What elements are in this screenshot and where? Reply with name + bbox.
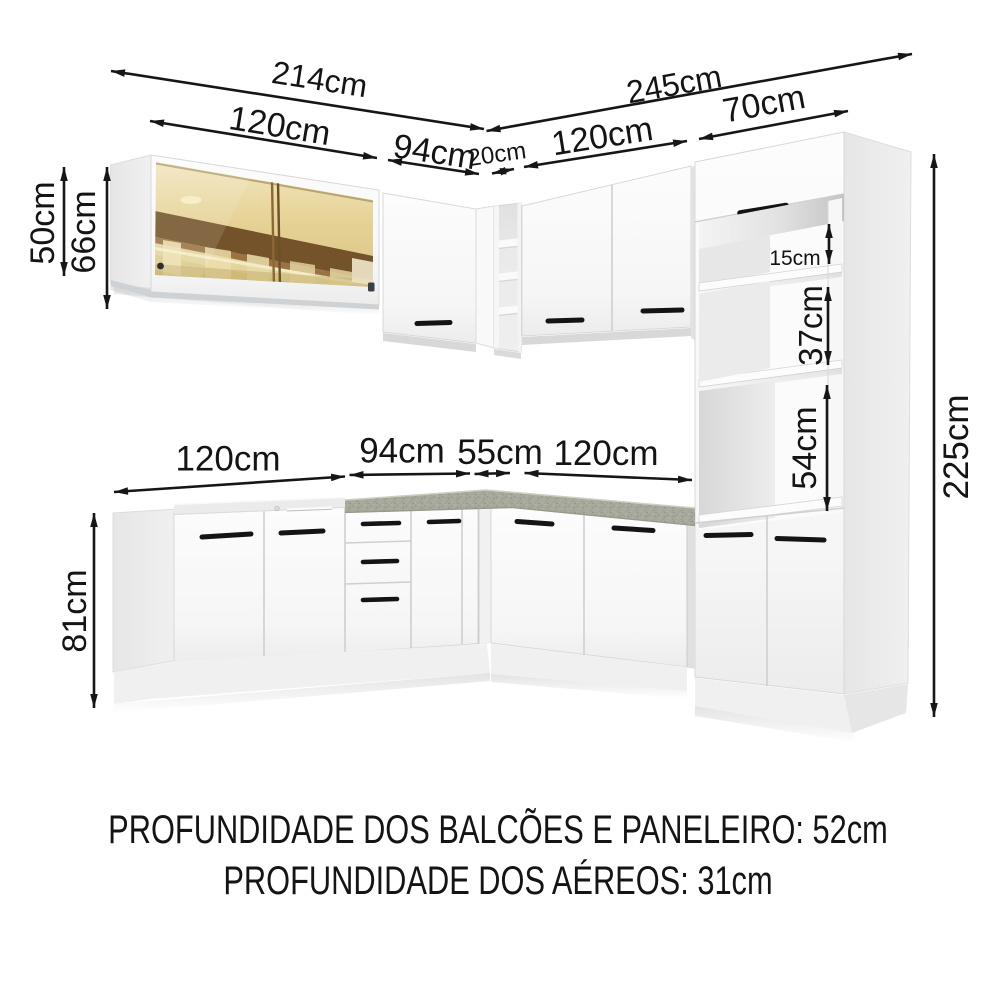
svg-text:50cm: 50cm bbox=[24, 181, 62, 264]
svg-text:54cm: 54cm bbox=[786, 406, 824, 489]
svg-text:37cm: 37cm bbox=[792, 285, 829, 366]
svg-text:94cm: 94cm bbox=[359, 432, 445, 471]
svg-text:225cm: 225cm bbox=[937, 394, 976, 499]
svg-text:120cm: 120cm bbox=[553, 434, 658, 473]
svg-text:55cm: 55cm bbox=[457, 433, 543, 472]
svg-text:120cm: 120cm bbox=[175, 440, 280, 479]
svg-text:PROFUNDIDADE DOS AÉREOS: 31cm: PROFUNDIDADE DOS AÉREOS: 31cm bbox=[223, 858, 772, 903]
svg-text:66cm: 66cm bbox=[65, 190, 103, 273]
svg-text:PROFUNDIDADE DOS BALCÕES E PAN: PROFUNDIDADE DOS BALCÕES E PANELEIRO: 52… bbox=[108, 807, 888, 852]
svg-text:15cm: 15cm bbox=[769, 247, 820, 270]
svg-text:81cm: 81cm bbox=[56, 569, 94, 652]
